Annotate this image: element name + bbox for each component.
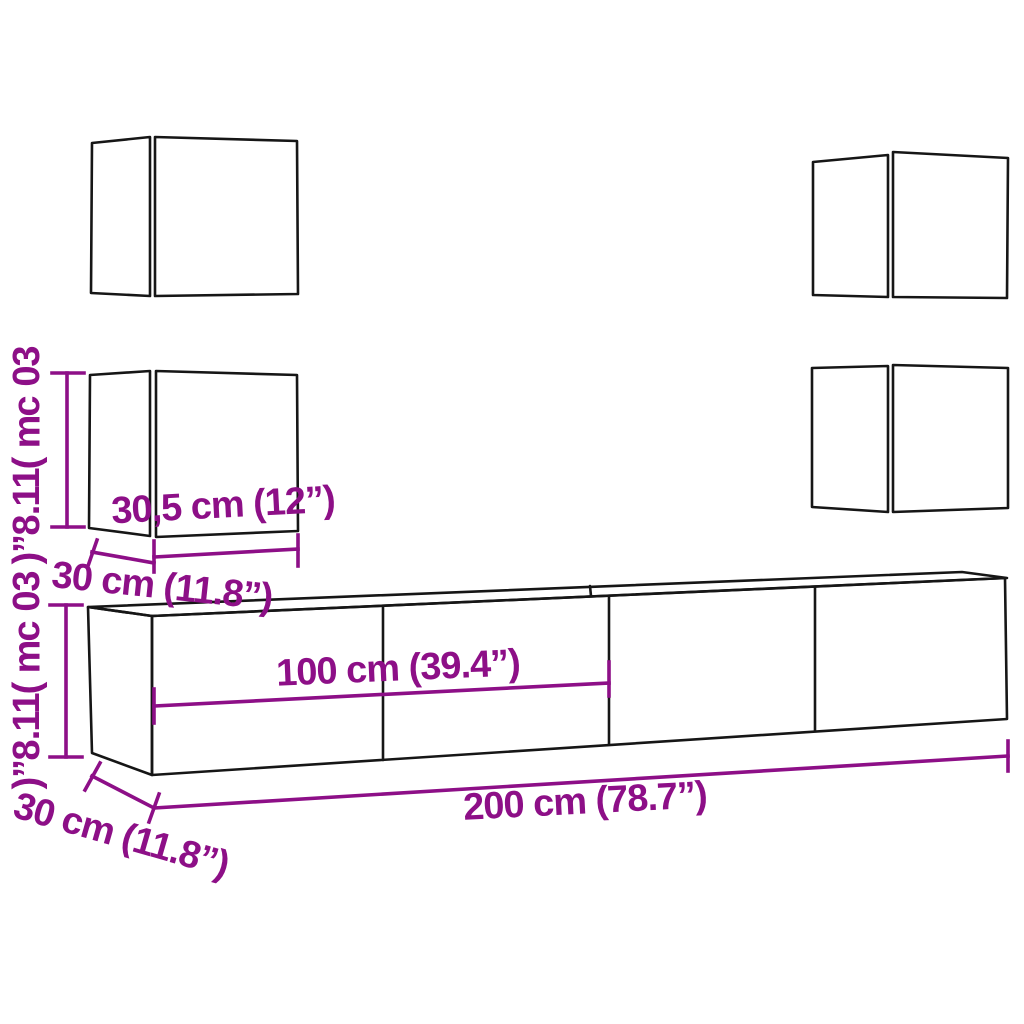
tv-bench-left-side-panel	[88, 607, 152, 775]
dim-line-cabinet-width	[154, 549, 298, 557]
cabinet-top-right-front-door	[893, 152, 1008, 298]
tv-bench-top-unit-joint	[590, 586, 591, 596]
diagram-canvas: 30 cm (11.8”) 30 cm (11.8”) 30,5 cm (12”…	[0, 0, 1024, 1024]
label-cabinet-height: 30 cm (11.8”)	[5, 346, 49, 564]
cabinet-top-left-side-panel	[91, 137, 150, 296]
cabinet-top-right-side-panel	[813, 155, 888, 297]
cabinet-top-left-front-door	[155, 137, 298, 296]
cabinet-mid-right-side-panel	[812, 366, 888, 512]
label-stand-height: 30 cm (11.8”)	[5, 571, 49, 789]
dim-cap-stand-depth-left	[85, 763, 100, 790]
cabinet-mid-right-front-door	[893, 365, 1008, 512]
dim-line-stand-depth	[92, 776, 154, 808]
